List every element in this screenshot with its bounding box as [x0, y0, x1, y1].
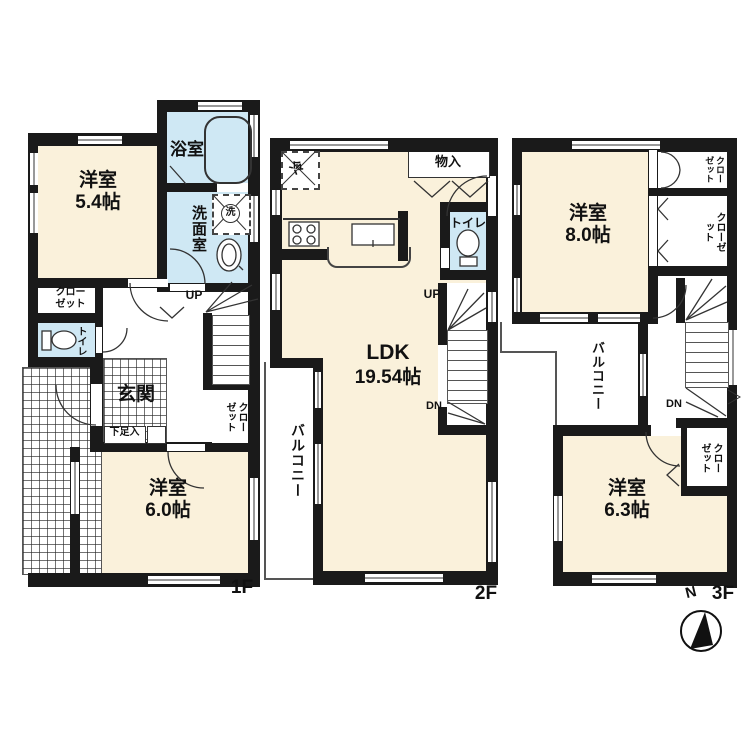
room-name: 洋室 [569, 203, 607, 224]
room-label-yoshitsu80: 洋室 8.0帖 [533, 203, 643, 249]
room-label-washroom: 洗面室 [187, 196, 207, 262]
up-label-1f: UP [181, 289, 207, 302]
stair-diagonal [448, 402, 485, 424]
room-label-yoshitsu63: 洋室 6.3帖 [572, 478, 682, 524]
closet-door-arc [661, 152, 680, 170]
stair-winder [206, 282, 258, 312]
floor-label-2f: 2F [470, 583, 502, 605]
toilet-label-2f: トイレ [448, 217, 488, 231]
stair-arrow [728, 390, 740, 404]
door-arc [130, 283, 168, 321]
compass-icon [681, 611, 721, 651]
room-size: 6.0帖 [145, 500, 190, 521]
closet1-label-3f: クローゼット [692, 152, 725, 186]
door-arc [653, 285, 686, 318]
closet-line2: ゼット [56, 299, 86, 310]
room-name: LDK [366, 341, 409, 364]
room-name: 洋室 [149, 478, 187, 499]
room-name: 洋室 [608, 478, 646, 499]
room-label-bath: 浴室 [162, 140, 212, 160]
room-size: 19.54帖 [355, 367, 422, 388]
folding-door-mark [160, 307, 184, 318]
toilet-icon [457, 230, 479, 266]
door-arc [103, 328, 127, 352]
dn-label-2f: DN [423, 400, 445, 412]
folding-door-mark [414, 181, 450, 197]
toilet-label-1f: トイレ [71, 323, 86, 359]
room-name: 洋室 [79, 170, 117, 191]
sink-icon [217, 239, 243, 271]
closet-line1: クロー [56, 287, 86, 298]
balcony-label-3f: バルコニー [587, 328, 605, 424]
folding-door-mark [658, 240, 668, 262]
shoebox-label: 下足入 [105, 427, 144, 441]
stair-diagonal [686, 388, 726, 417]
folding-door-mark [658, 198, 668, 220]
closet3-label-3f: クローゼット [689, 440, 722, 476]
room-size: 8.0帖 [565, 225, 610, 246]
balcony-label-2f: バルコニー [287, 378, 306, 543]
dn-label-3f: DN [663, 398, 685, 410]
stove-icon [289, 222, 319, 246]
bath-door-mark [170, 166, 186, 184]
genkan-label: 玄関 [107, 384, 165, 408]
door-arc [646, 432, 680, 466]
washer-label: 洗 [221, 204, 240, 223]
floor-label-3f: 3F [707, 583, 739, 605]
kitchen-sink-icon [352, 224, 394, 247]
closet-door-arc [661, 170, 680, 188]
closet-label-1f: クロー ゼット [46, 287, 95, 313]
closet2-label-3f: クローゼット [691, 212, 725, 252]
room-size: 5.4帖 [75, 192, 120, 213]
stair-closet-label-1f: クローゼット [213, 398, 247, 436]
stair-winder [686, 279, 727, 320]
stair-winder [448, 289, 486, 330]
room-label-ldk: LDK 19.54帖 [327, 341, 449, 389]
room-label-yoshitsu60: 洋室 6.0帖 [118, 478, 218, 524]
storage-label: 物入 [408, 155, 488, 173]
floor-plan: 浴室 洗面室 洗 洋室 5.4帖 クロー ゼット トイレ 玄関 下足入 UP ク… [0, 0, 750, 750]
door-arc [56, 385, 96, 425]
floor-label-1f: 1F [226, 577, 258, 599]
room-size: 6.3帖 [604, 500, 649, 521]
up-label-2f: UP [419, 288, 445, 301]
room-label-yoshitsu54: 洋室 5.4帖 [48, 170, 148, 216]
